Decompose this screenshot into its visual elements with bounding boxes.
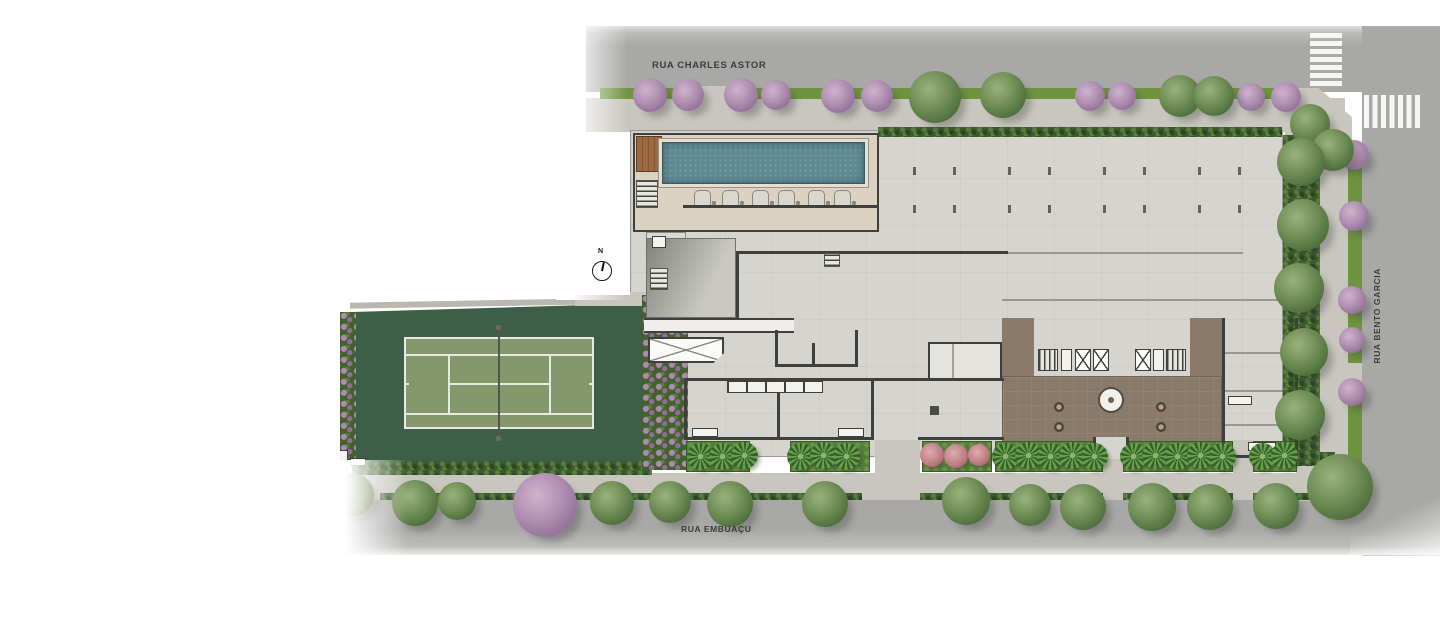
green-tree: [707, 481, 753, 527]
green-tree: [1187, 484, 1233, 530]
wall-segment: [1002, 299, 1298, 301]
tennis-net: [498, 328, 500, 438]
purple-tree: [724, 78, 758, 112]
hedge-building-north: [878, 127, 1282, 137]
hedge-below-court: [352, 461, 652, 475]
green-tree: [942, 477, 990, 525]
court-line: [589, 383, 594, 385]
green-tree: [590, 481, 634, 525]
north-compass: N: [588, 248, 622, 284]
driveway-main: [875, 440, 920, 498]
column-mark: [1048, 167, 1051, 175]
shrub-strip-west-of-court: [340, 312, 356, 462]
column-mark: [1238, 205, 1241, 213]
planter-dark: [930, 406, 939, 415]
wall-segment: [736, 251, 1008, 254]
column-mark: [1008, 205, 1011, 213]
pool-stairs: [636, 180, 658, 208]
purple-tree: [1108, 82, 1136, 110]
pink-bush: [944, 444, 968, 468]
page-white-mask: [0, 295, 340, 618]
compass-north-label: N: [598, 248, 603, 255]
column-mark: [1143, 205, 1146, 213]
green-tree: [1275, 390, 1325, 440]
purple-tree: [861, 80, 893, 112]
purple-tree: [1237, 83, 1265, 111]
purple-tree: [672, 79, 704, 111]
edge-fade-top: [560, 0, 1440, 28]
stairs-west: [650, 268, 668, 290]
wood-deck: [636, 136, 662, 172]
court-line: [448, 354, 450, 415]
pink-bush: [920, 443, 944, 467]
purple-tree: [1338, 378, 1366, 406]
green-tree: [1274, 263, 1324, 313]
green-tree: [438, 482, 476, 520]
palm-tree: [1081, 443, 1108, 470]
wall-segment: [871, 378, 874, 440]
green-tree: [392, 480, 438, 526]
wall-segment: [1222, 318, 1225, 457]
crosswalk-bento-garcia: [1364, 95, 1422, 128]
column-mark: [1048, 205, 1051, 213]
net-post: [496, 325, 501, 330]
green-tree: [1194, 76, 1234, 116]
wall-segment: [736, 251, 739, 320]
wall-segment: [1008, 252, 1243, 254]
green-tree: [1280, 328, 1328, 376]
purple-tree: [1339, 201, 1369, 231]
wall-segment: [775, 330, 778, 367]
lobby-block-east: [1190, 318, 1222, 376]
green-tree: [1128, 483, 1176, 531]
green-tree: [649, 481, 691, 523]
column-mark: [953, 205, 956, 213]
water-tank: [648, 337, 724, 363]
purple-tree: [821, 79, 855, 113]
green-tree: [802, 481, 848, 527]
service-structure: [350, 458, 366, 466]
wall-segment: [775, 364, 858, 367]
service-room-west: [652, 236, 666, 248]
plant-pot: [1156, 422, 1166, 432]
crosswalk-charles-astor: [1310, 33, 1342, 87]
wall-segment: [1225, 390, 1295, 392]
balcony-door: [838, 428, 864, 437]
net-post: [496, 436, 501, 441]
door-mark: [1228, 396, 1252, 405]
plant-pot: [1054, 402, 1064, 412]
elevator-lobby-east: [1153, 349, 1164, 371]
green-tree: [1060, 484, 1106, 530]
wall-segment: [952, 344, 954, 378]
stairs-core-west: [1038, 349, 1058, 371]
gym-block: [928, 342, 1002, 380]
stairs-core-east: [1166, 349, 1186, 371]
column-mark: [1198, 205, 1201, 213]
purple-tree: [513, 473, 577, 537]
street-label-bento-garcia: RUA BENTO GARCIA: [1372, 268, 1382, 364]
elevator-shaft: [1075, 349, 1091, 371]
elevator-shaft: [1135, 349, 1151, 371]
plant-pot: [1156, 402, 1166, 412]
column-mark: [1103, 167, 1106, 175]
green-tree: [1253, 483, 1299, 529]
elevator-lobby-west: [1061, 349, 1072, 371]
bathroom-row: [727, 380, 823, 393]
street-label-charles-astor: RUA CHARLES ASTOR: [652, 60, 766, 71]
wall-segment: [684, 437, 874, 440]
pink-bush: [968, 444, 990, 466]
purple-tree: [761, 80, 791, 110]
column-mark: [1103, 205, 1106, 213]
wall-segment: [812, 343, 815, 367]
purple-tree: [1075, 81, 1105, 111]
balcony-door: [692, 428, 718, 437]
palm-tree: [731, 442, 758, 469]
green-tree: [1277, 138, 1325, 186]
court-line: [404, 383, 409, 385]
purple-tree: [1339, 327, 1365, 353]
wall-segment: [855, 330, 858, 367]
page-white-mask: [0, 132, 630, 295]
edge-fade-bottom: [0, 548, 1440, 618]
fountain: [1098, 387, 1124, 413]
column-mark: [1198, 167, 1201, 175]
wall-segment: [683, 205, 879, 208]
column-mark: [1238, 167, 1241, 175]
column-mark: [1143, 167, 1146, 175]
green-tree: [980, 72, 1026, 118]
green-tree: [1277, 199, 1329, 251]
green-tree: [1307, 454, 1373, 520]
wall-segment: [918, 437, 1004, 440]
stairs-core-north: [824, 253, 840, 267]
palm-tree: [833, 443, 860, 470]
column-mark: [953, 167, 956, 175]
lobby-block-west: [1002, 318, 1034, 376]
column-mark: [913, 167, 916, 175]
site-plan: RUA CHARLES ASTOR RUA EMBUAÇU RUA BENTO …: [0, 0, 1440, 618]
palm-tree: [1271, 442, 1298, 469]
purple-tree: [633, 78, 667, 112]
sidewalk-east: [1318, 132, 1352, 502]
column-mark: [1008, 167, 1011, 175]
wall-segment: [684, 378, 687, 440]
green-tree: [1009, 484, 1051, 526]
corridor: [644, 318, 794, 333]
palm-tree: [1209, 443, 1236, 470]
purple-tree: [1338, 286, 1366, 314]
elevator-shaft: [1093, 349, 1109, 371]
green-tree: [330, 473, 374, 517]
plant-pot: [1054, 422, 1064, 432]
swimming-pool: [662, 142, 865, 184]
page-white-mask: [0, 0, 586, 134]
column-mark: [913, 205, 916, 213]
court-line: [549, 354, 551, 415]
street-label-embuacu: RUA EMBUAÇU: [681, 524, 752, 534]
green-tree: [909, 71, 961, 123]
